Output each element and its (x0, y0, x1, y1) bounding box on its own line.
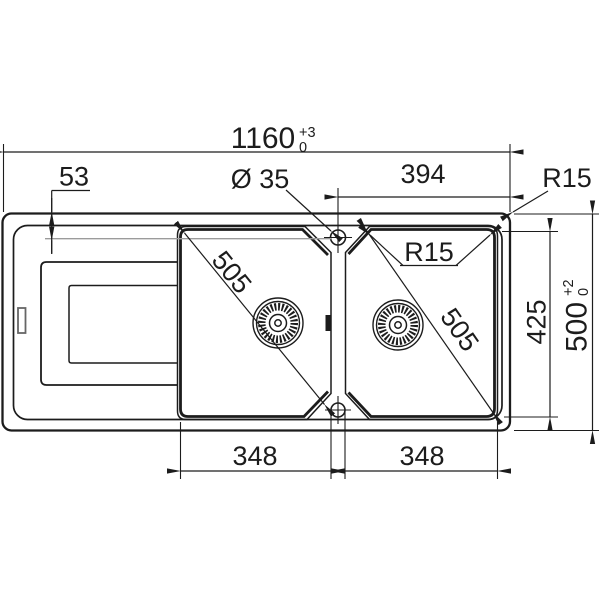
dim-overall-width-label: 1160 (231, 122, 296, 155)
strainer-inner-ring-icon (390, 317, 407, 334)
dim-bowl-corner-radius-label: R15 (404, 237, 454, 267)
dim-bowl-width-right: 348 (345, 412, 498, 479)
dim-overall-depth-label: 500 (561, 302, 594, 352)
strainer-center-icon (275, 320, 281, 326)
dim-bowl-diagonal-left: 505 (185, 233, 325, 405)
sink-technical-drawing: 1160 +3 0 53 Ø 35 394 R15 R15 505 (0, 0, 600, 600)
strainer-second-ring-icon (377, 304, 420, 347)
leader-line (513, 191, 548, 212)
dim-bowl-width-left-label: 348 (232, 441, 277, 471)
dim-bowl-diagonal-left-label: 505 (206, 245, 258, 299)
drainer-board (18, 262, 178, 385)
drainer-outer-groove (41, 262, 178, 385)
sink-body (3, 188, 511, 431)
dim-overall-depth-tol-plus: +2 (561, 279, 577, 296)
dim-edge-to-taphole-label: 53 (59, 162, 89, 192)
drain-strainer-right (373, 300, 423, 350)
dim-taphole-diameter-label: Ø 35 (231, 164, 290, 194)
drain-strainer-left (253, 298, 303, 348)
dim-taphole-diameter: Ø 35 (231, 164, 331, 231)
tap-hole (324, 188, 352, 253)
dim-bowl-width-left: 348 (181, 412, 332, 479)
left-bowl-rim-contour (178, 227, 332, 420)
diagonal-dimension-line (185, 233, 325, 405)
leader-line-right (456, 235, 490, 266)
strainer-center-icon (395, 322, 401, 328)
dim-outer-corner-radius: R15 (513, 163, 592, 212)
dim-overall-width-tol-minus: 0 (299, 140, 307, 156)
strainer-inner-ring-icon (270, 315, 287, 332)
drainer-overflow-slot (18, 308, 26, 333)
drainer-inner-groove (69, 286, 178, 364)
dim-overall-depth-tol-minus: 0 (576, 288, 592, 296)
dim-overall-width-tol-plus: +3 (299, 125, 316, 141)
dim-outer-corner-radius-label: R15 (542, 163, 592, 193)
divider-overflow-slot (326, 315, 332, 331)
dim-bowl-diagonal-right-label: 505 (434, 303, 484, 357)
left-bowl (178, 227, 332, 420)
left-bowl-inner-edge (181, 230, 329, 417)
strainer-tick-ring-icon (382, 309, 415, 342)
drawing-canvas: 1160 +3 0 53 Ø 35 394 R15 R15 505 (0, 0, 600, 600)
dim-bowl-width-right-label: 348 (399, 441, 444, 471)
dim-taphole-to-right-edge-label: 394 (400, 159, 445, 189)
leader-line-left (370, 235, 403, 266)
dim-bowl-depth-label: 425 (522, 299, 552, 344)
dim-taphole-to-right-edge: 394 (338, 159, 510, 197)
